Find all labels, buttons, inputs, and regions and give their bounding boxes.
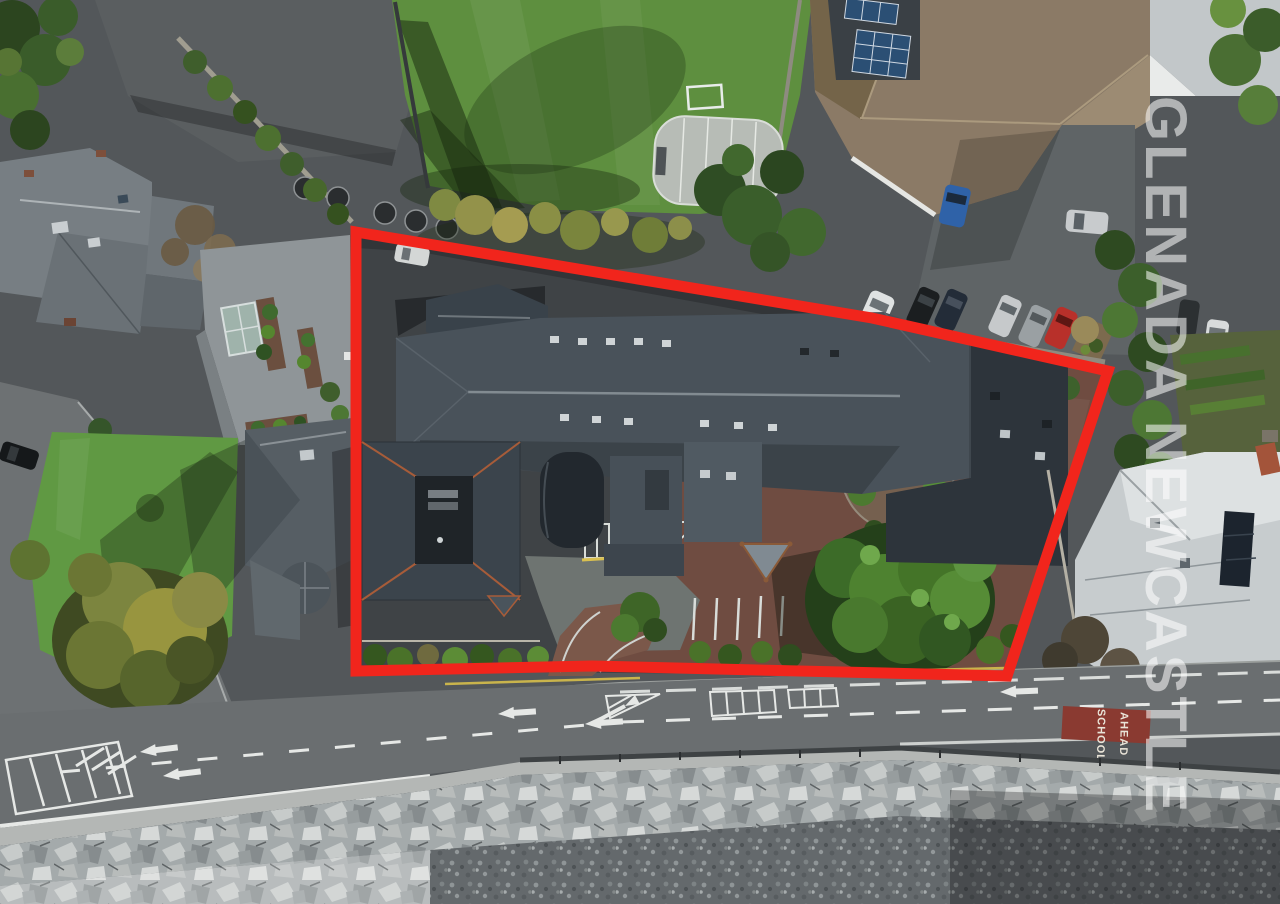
solar-array xyxy=(1219,511,1254,587)
aerial-photo-page: SCHOOL AHEAD GLENADA NEWCASTLE xyxy=(0,0,1280,904)
garden-greenhouse xyxy=(221,302,263,355)
road-text-school: SCHOOL xyxy=(1094,709,1107,762)
inner-courtyard xyxy=(415,476,473,564)
road-text-ahead: AHEAD xyxy=(1117,712,1130,756)
pampas-plant xyxy=(1071,316,1099,344)
aerial-photo: SCHOOL AHEAD xyxy=(0,0,1280,904)
slate-annex xyxy=(828,0,920,80)
tower-roof xyxy=(362,442,520,616)
landscaped-garden xyxy=(196,235,372,448)
garden-shed xyxy=(1262,430,1278,442)
curved-roof xyxy=(540,452,604,548)
